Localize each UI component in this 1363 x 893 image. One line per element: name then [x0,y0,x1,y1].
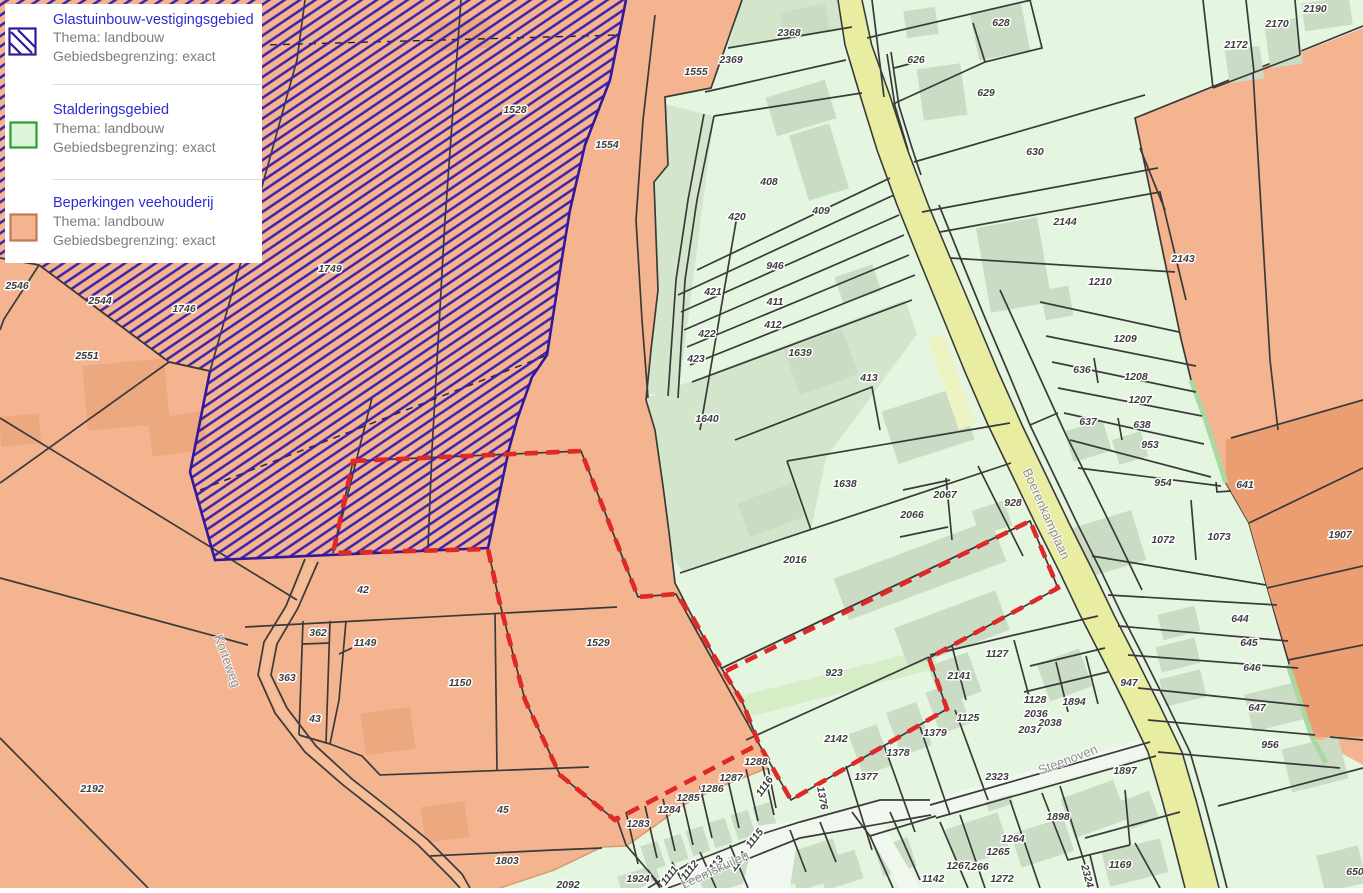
svg-text:1894: 1894 [1062,696,1086,708]
svg-text:1267: 1267 [946,860,971,872]
svg-text:954: 954 [1154,477,1172,489]
svg-text:1638: 1638 [833,478,857,490]
svg-text:411: 411 [766,296,784,308]
svg-text:Thema: landbouw: Thema: landbouw [53,213,165,229]
svg-text:1528: 1528 [503,104,527,116]
svg-text:1379: 1379 [923,727,947,739]
svg-text:Stalderingsgebied: Stalderingsgebied [53,102,169,118]
svg-text:1286: 1286 [700,783,724,795]
svg-text:45: 45 [496,804,509,816]
svg-text:1924: 1924 [626,873,650,885]
svg-text:2172: 2172 [1223,39,1248,51]
svg-text:1639: 1639 [788,347,812,359]
svg-text:1898: 1898 [1046,811,1070,823]
svg-text:2544: 2544 [87,295,112,307]
svg-text:956: 956 [1261,739,1279,751]
svg-text:408: 408 [759,176,778,188]
svg-text:1555: 1555 [684,66,708,78]
svg-text:Gebiedsbegrenzing: exact: Gebiedsbegrenzing: exact [53,232,216,248]
svg-text:2368: 2368 [776,27,801,39]
svg-text:43: 43 [308,713,321,725]
svg-text:928: 928 [1004,497,1022,509]
svg-text:1284: 1284 [657,804,681,816]
svg-text:363: 363 [278,672,296,684]
svg-text:1378: 1378 [886,747,910,759]
svg-text:1272: 1272 [990,873,1014,885]
svg-text:409: 409 [811,205,830,217]
svg-text:923: 923 [825,667,843,679]
svg-text:1150: 1150 [449,677,472,689]
svg-text:2067: 2067 [932,489,958,501]
svg-text:1210: 1210 [1088,276,1112,288]
svg-text:1287: 1287 [719,772,744,784]
svg-text:2369: 2369 [718,54,743,66]
svg-text:Thema: landbouw: Thema: landbouw [53,120,165,136]
svg-text:1209: 1209 [1113,333,1137,345]
svg-text:2141: 2141 [946,670,971,682]
svg-text:2551: 2551 [74,350,99,362]
svg-text:1377: 1377 [854,771,879,783]
svg-text:1529: 1529 [586,637,610,649]
svg-text:421: 421 [703,286,722,298]
svg-text:1746: 1746 [172,303,196,315]
svg-text:1907: 1907 [1328,529,1353,541]
svg-text:1127: 1127 [986,648,1010,660]
svg-text:Gebiedsbegrenzing: exact: Gebiedsbegrenzing: exact [53,48,216,64]
svg-text:1285: 1285 [676,792,700,804]
svg-text:650: 650 [1346,866,1363,878]
svg-text:1149: 1149 [354,637,377,649]
svg-text:645: 645 [1240,637,1258,649]
svg-text:636: 636 [1073,364,1091,376]
svg-text:42: 42 [356,584,369,596]
svg-text:422: 422 [697,328,716,340]
svg-text:947: 947 [1120,677,1139,689]
svg-text:1125: 1125 [957,712,980,724]
svg-text:1749: 1749 [318,263,342,275]
svg-text:2016: 2016 [782,554,807,566]
svg-text:953: 953 [1141,439,1159,451]
svg-text:2546: 2546 [4,280,29,292]
svg-text:637: 637 [1079,416,1098,428]
svg-text:646: 646 [1243,662,1261,674]
svg-text:1169: 1169 [1109,859,1132,871]
svg-text:946: 946 [766,260,784,272]
svg-text:2190: 2190 [1302,3,1327,15]
svg-text:628: 628 [992,17,1010,29]
svg-text:1072: 1072 [1151,534,1175,546]
svg-text:1264: 1264 [1001,833,1025,845]
svg-text:638: 638 [1133,419,1151,431]
svg-text:647: 647 [1248,702,1267,714]
svg-text:1554: 1554 [595,139,619,151]
svg-text:1073: 1073 [1207,531,1231,543]
svg-text:413: 413 [859,372,878,384]
svg-text:2066: 2066 [899,509,924,521]
svg-text:641: 641 [1236,479,1254,491]
svg-text:Thema: landbouw: Thema: landbouw [53,29,165,45]
svg-text:Gebiedsbegrenzing: exact: Gebiedsbegrenzing: exact [53,139,216,155]
svg-text:2143: 2143 [1170,253,1195,265]
svg-text:Glastuinbouw-vestigingsgebied: Glastuinbouw-vestigingsgebied [53,12,254,28]
svg-text:1142: 1142 [922,873,945,885]
svg-text:362: 362 [309,627,327,639]
svg-text:1265: 1265 [986,846,1010,858]
svg-text:644: 644 [1231,613,1249,625]
svg-text:630: 630 [1026,146,1044,158]
svg-text:1803: 1803 [495,855,519,867]
svg-text:1897: 1897 [1113,765,1138,777]
svg-text:2170: 2170 [1264,18,1289,30]
svg-text:2192: 2192 [79,783,104,795]
svg-text:412: 412 [763,319,782,331]
svg-text:2038: 2038 [1037,717,1062,729]
svg-text:2323: 2323 [984,771,1009,783]
svg-text:423: 423 [686,353,705,365]
svg-text:1128: 1128 [1024,694,1047,706]
svg-text:1288: 1288 [744,756,768,768]
svg-text:2092: 2092 [555,879,580,888]
svg-text:1283: 1283 [626,818,650,830]
svg-text:2144: 2144 [1052,216,1077,228]
svg-text:626: 626 [907,54,925,66]
svg-text:2142: 2142 [823,733,848,745]
svg-text:1208: 1208 [1124,371,1148,383]
svg-text:1640: 1640 [695,413,719,425]
svg-text:420: 420 [727,211,746,223]
svg-text:629: 629 [977,87,995,99]
svg-text:Beperkingen veehouderij: Beperkingen veehouderij [53,195,213,211]
svg-text:1207: 1207 [1128,394,1153,406]
